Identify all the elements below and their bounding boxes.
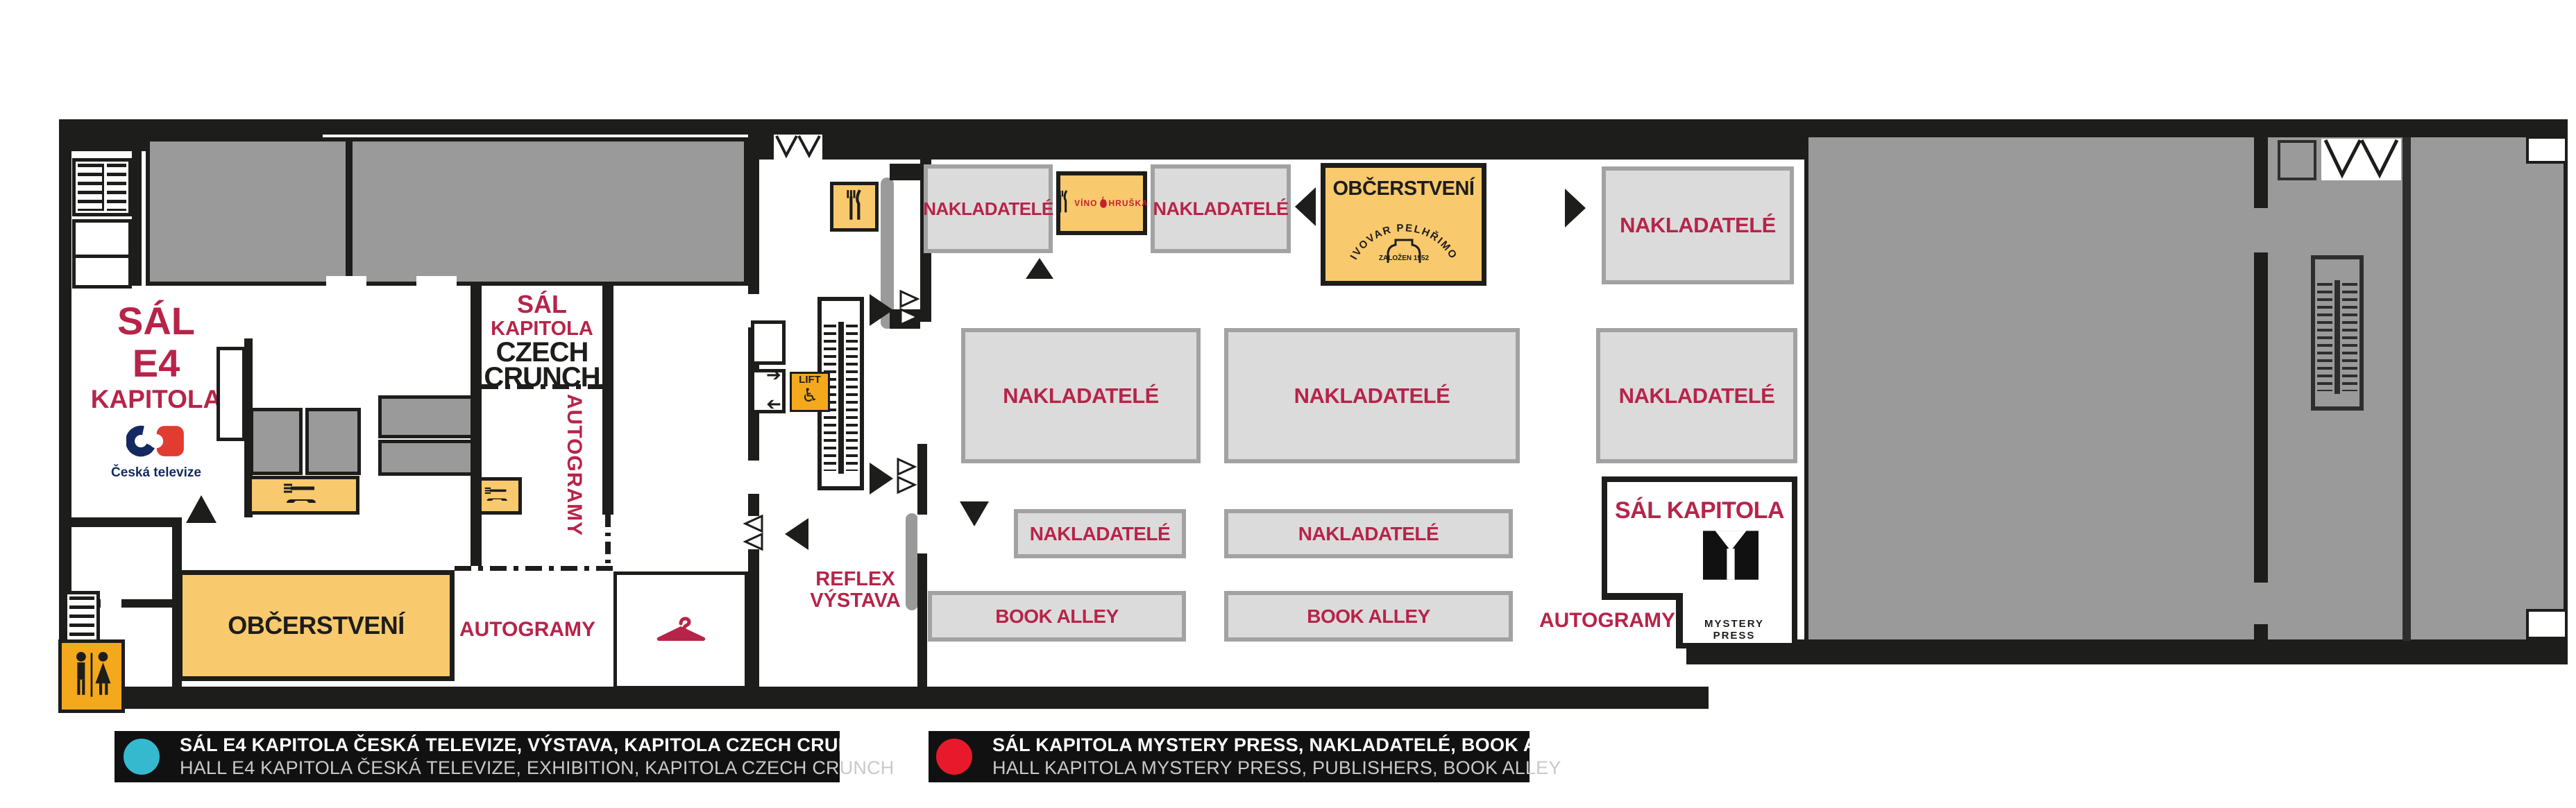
arrow-down-floor [960,501,989,526]
booth-nakladatele-top-1: NAKLADATELÉ [924,164,1053,253]
booth-nakladatele-low-1: NAKLADATELÉ [1014,509,1186,558]
czech-crunch-label: SÁL KAPITOLA CZECH CRUNCH [482,291,602,390]
door-chevrons-1 [899,290,920,329]
wall-left-vertical [132,137,142,286]
pillar-2 [906,513,918,610]
corridor-right-door-gap [917,515,927,553]
autogramy-bottom-label: AUTOGRAMY [455,617,600,642]
booth-label: NAKLADATELÉ [923,198,1053,220]
booth-nakladatele-mid-2: NAKLADATELÉ [1224,328,1520,463]
legend-1-line1: SÁL E4 KAPITOLA ČESKÁ TELEVIZE, VÝSTAVA,… [180,734,895,757]
right-edge-notch-top [2526,136,2568,164]
gray-room-2 [305,408,361,475]
autogramy-vertical-label: AUTOGRAMY [562,394,586,536]
gray-room-3 [378,395,477,438]
cloakroom [613,571,748,689]
lift-arrow-left-icon: ➔ [766,394,781,415]
arrow-left-top-row [1295,187,1316,226]
catering-table-box-1 [248,476,359,515]
vino-hruska-box: VÍNO HRUŠKA [1056,171,1147,235]
booth-label: NAKLADATELÉ [1620,213,1776,238]
booth-nakladatele-low-2: NAKLADATELÉ [1224,509,1513,558]
booth-label: BOOK ALLEY [1307,605,1430,628]
reflex-exhibition-label: REFLEX VÝSTAVA [798,569,913,612]
wc-icon [69,651,115,703]
legend-2-line1: SÁL KAPITOLA MYSTERY PRESS, NAKLADATELÉ,… [992,734,1586,757]
hanger-icon [654,614,707,648]
north-service-area [146,137,748,286]
cc-line3: CZECH [482,340,602,365]
right-edge-notch-bottom [2526,609,2568,639]
north-door-gap-2 [416,276,457,289]
booth-label: NAKLADATELÉ [1003,384,1159,409]
legend-entry-2: SÁL KAPITOLA MYSTERY PRESS, NAKLADATELÉ,… [929,731,1529,782]
arrow-right-corridor-top [870,294,893,326]
gray-room-4 [378,440,477,476]
cc-line1: SÁL [482,291,602,318]
fork-knife-icon [844,189,865,225]
mystery-brand: MYSTERY PRESS [1682,618,1786,642]
pillar-block-top [890,164,920,180]
service-box-outline [2278,140,2316,180]
booth-label: NAKLADATELÉ [1294,384,1450,409]
door-chevrons-3 [743,515,763,554]
pivovar-name: PIVOVAR PELHŘIMOV [1331,202,1459,261]
vino-hruska-logo: VÍNO HRUŠKA [1074,196,1149,212]
lift-shaft-1 [751,320,786,365]
legend-2-line2: HALL KAPITOLA MYSTERY PRESS, PUBLISHERS,… [992,757,1586,780]
pivovar-logo: PIVOVAR PELHŘIMOV ZALOŽEN 1552 [1325,202,1482,277]
right-bottom-wall [1804,639,2568,664]
right-inner-wall [2403,137,2411,641]
catering-table-box-2 [475,477,522,515]
floor-plan: SÁL E4 KAPITOLA Česká televize [0,0,2576,808]
food-box-top [830,182,879,232]
autogramy-right-label: AUTOGRAMY [1524,608,1690,634]
hall-e4-line1: SÁL [62,300,250,343]
legend-1-line2: HALL E4 KAPITOLA ČESKÁ TELEVIZE, EXHIBIT… [180,757,895,780]
lift-label: LIFT [792,374,828,386]
arrow-up-e4 [186,495,217,523]
corridor-top-door-icon [774,135,822,160]
obcerstveni-left-label: OBČERSTVENÍ [228,611,405,640]
cc-wall-left [471,286,482,566]
mystery-notch-wall-v [1676,593,1683,648]
pear-icon [1099,196,1108,212]
obcerstveni-left-box: OBČERSTVENÍ [178,570,455,681]
booth-label: NAKLADATELÉ [1619,384,1775,409]
north-door-gap-1 [326,276,366,289]
mystery-notch-wall-h [1602,593,1683,600]
north-inner-wall [346,137,353,286]
top-wall-thick-mid [748,119,1858,160]
booth-label: BOOK ALLEY [995,605,1119,628]
rooms-bl-top-wall [59,517,182,527]
lift-wheelchair-icon: ♿ [792,386,828,406]
bottom-wall-main [59,687,1709,709]
rooms-top-left [72,219,132,289]
booth-book-alley-1: BOOK ALLEY [928,591,1186,642]
obcerstveni-top-label: OBČERSTVENÍ [1325,178,1482,200]
svg-text:PIVOVAR PELHŘIMOV: PIVOVAR PELHŘIMOV [1331,202,1459,261]
legend-entry-1: SÁL E4 KAPITOLA ČESKÁ TELEVIZE, VÝSTAVA,… [115,731,840,782]
legend-dot-red [931,734,977,780]
booth-label: NAKLADATELÉ [1298,523,1439,545]
escalator-right-icon [2311,255,2364,411]
fork-table-icon [483,483,515,509]
reflex-line2: VÝSTAVA [798,590,913,612]
booth-nakladatele-mid-1: NAKLADATELÉ [961,328,1201,463]
booth-label: NAKLADATELÉ [1030,523,1170,545]
obcerstveni-pelhrimov-box: OBČERSTVENÍ PIVOVAR PELHŘIMOV ZALOŽEN 15… [1321,163,1486,286]
door-chevrons-2 [897,458,917,497]
arrow-right-corridor-mid [870,463,893,495]
booth-book-alley-2: BOOK ALLEY [1224,591,1513,642]
rooms-bl-divider-b [121,599,172,608]
hruska-word: HRUŠKA [1109,198,1149,208]
gray-room-1 [250,408,303,475]
cc-wall-right-dashed [605,515,611,567]
right-partition-door-1 [2254,208,2268,252]
pivovar-founded: ZALOŽEN 1552 [1378,253,1429,262]
lift-box: LIFT ♿ [790,372,830,412]
arrow-up-floor [1026,258,1053,279]
arrow-right-top-row [1565,189,1586,227]
lift-arrow-right-icon: ➔ [766,365,781,386]
mystery-press-logo [1703,531,1759,592]
stairs-top-left-icon [72,158,132,216]
reflex-line1: REFLEX [798,569,913,590]
e4-stage [217,347,246,441]
cc-wall-right [602,286,613,515]
fork-knife-icon [1055,189,1070,218]
cc-dashdot-divider [482,384,602,389]
double-door-icon [2321,139,2401,180]
booth-nakladatele-top-3: NAKLADATELÉ [1602,166,1794,284]
mystery-title: SÁL KAPITOLA [1607,497,1792,524]
booth-label: NAKLADATELÉ [1153,198,1289,220]
legend-text-2: SÁL KAPITOLA MYSTERY PRESS, NAKLADATELÉ,… [992,734,1586,780]
vino-word: VÍNO [1074,198,1097,208]
right-service-area [1804,133,2568,645]
arrow-left-corridor [785,518,808,550]
ct-logo-text: Česká televize [62,465,250,481]
corridor-right-wall-bottom [917,444,927,687]
autogramy-zone-divider [455,566,613,571]
legend-text-1: SÁL E4 KAPITOLA ČESKÁ TELEVIZE, VÝSTAVA,… [180,734,895,780]
legend-dot-cyan [119,734,164,780]
fork-table-icon [281,481,327,510]
booth-nakladatele-mid-3: NAKLADATELÉ [1596,328,1797,463]
booth-nakladatele-top-2: NAKLADATELÉ [1151,164,1291,253]
right-partition-door-2 [2254,583,2268,624]
wc-box [58,639,125,713]
corridor-door-gap-2 [748,461,759,494]
